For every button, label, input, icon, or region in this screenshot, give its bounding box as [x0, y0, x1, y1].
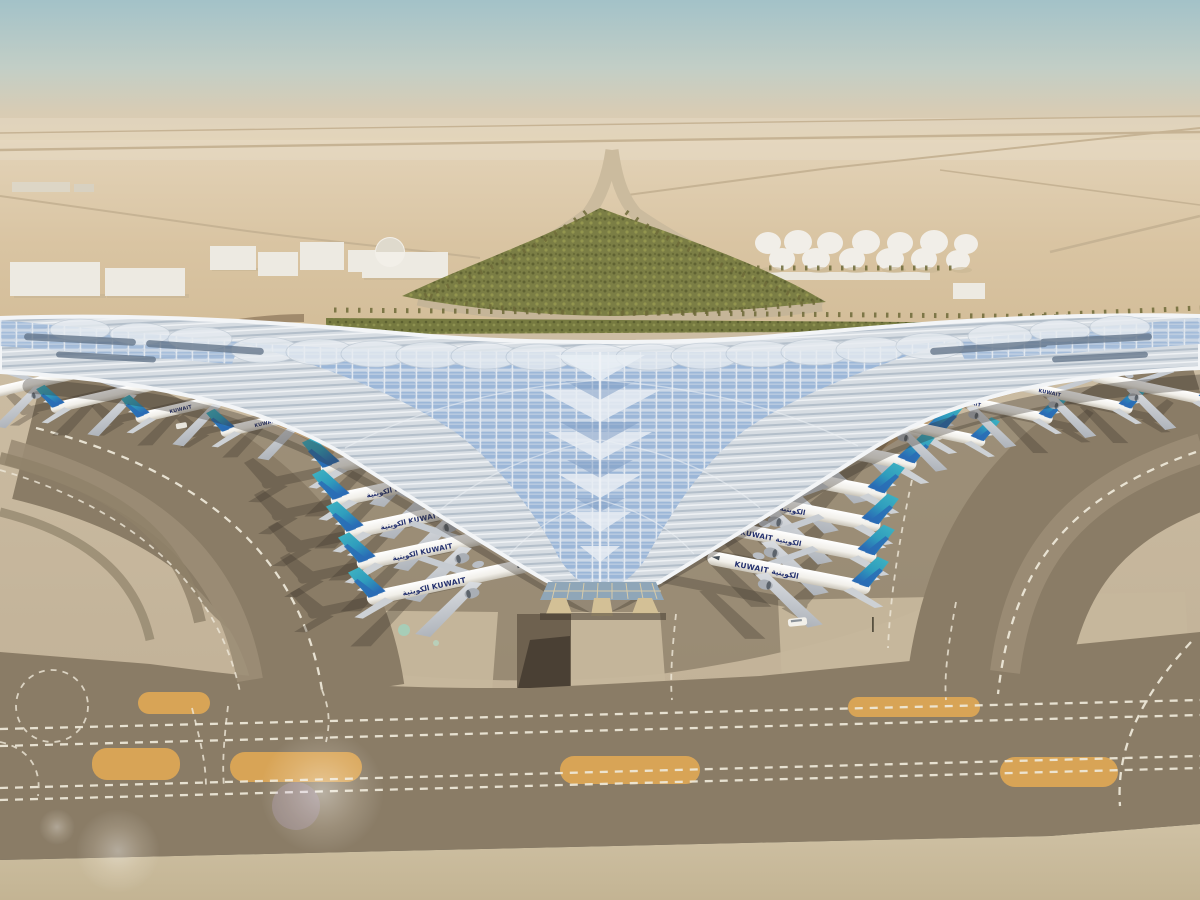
scene: الكويتية KUWAIT الكويتية KUWAIT الكويتية… — [0, 0, 1200, 900]
light-pole — [872, 617, 874, 632]
terminal-tip-facade — [540, 582, 666, 620]
airport-aerial-rendering: الكويتية KUWAIT الكويتية KUWAIT الكويتية… — [0, 0, 1200, 900]
underpass-trench — [517, 614, 571, 692]
tip-ground-shadow — [540, 613, 666, 620]
